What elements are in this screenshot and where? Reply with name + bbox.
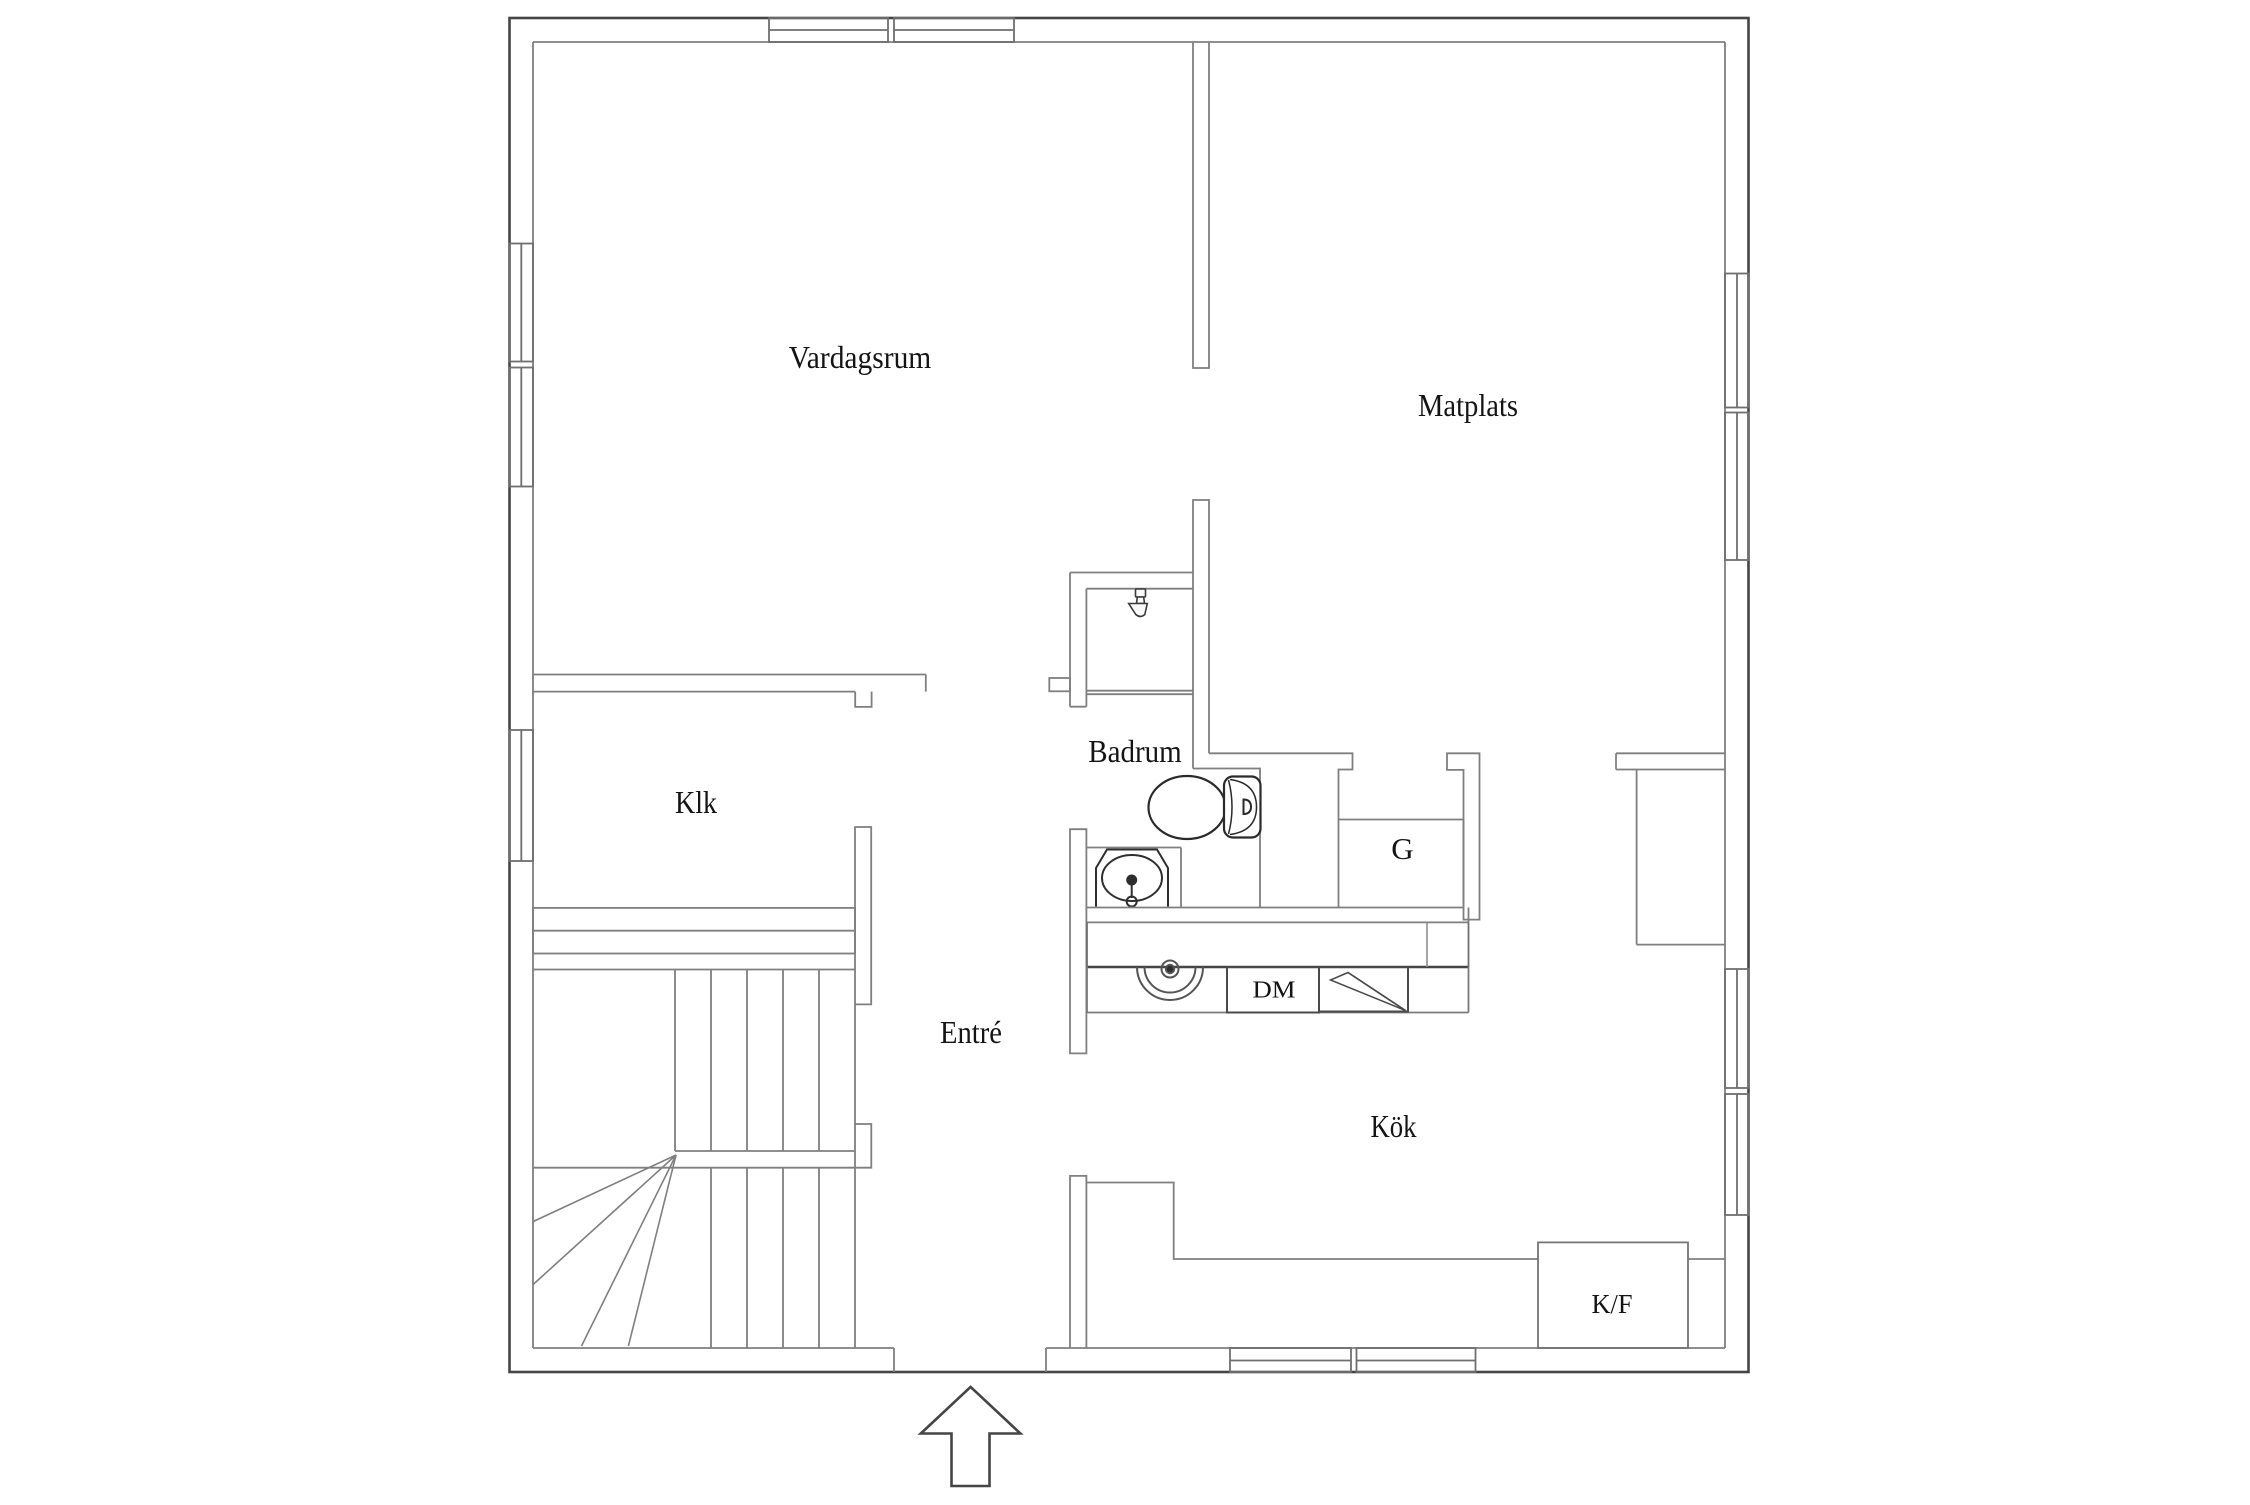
svg-text:Vardagsrum: Vardagsrum [789,339,932,375]
svg-text:K/F: K/F [1592,1289,1633,1319]
svg-text:Klk: Klk [675,784,717,820]
svg-text:Kök: Kök [1371,1108,1417,1144]
svg-text:Matplats: Matplats [1418,387,1518,423]
svg-text:DM: DM [1253,978,1296,1004]
svg-text:Entré: Entré [940,1014,1002,1050]
svg-text:G: G [1391,831,1413,866]
svg-text:Badrum: Badrum [1088,733,1182,769]
